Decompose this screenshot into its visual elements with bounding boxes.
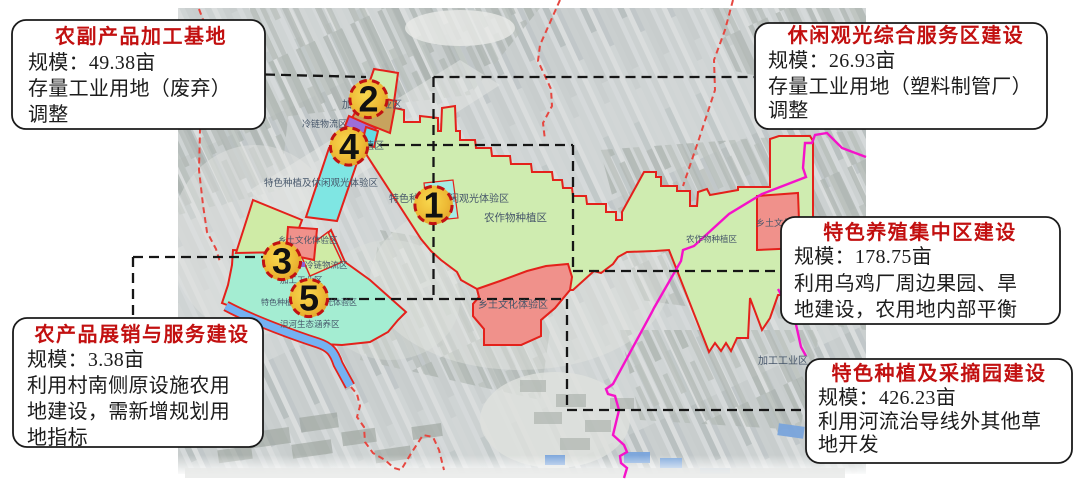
svg-text:调整: 调整 [28,103,69,126]
svg-text:地指标: 地指标 [27,426,88,449]
svg-text:冷链物流区: 冷链物流区 [305,260,348,270]
svg-text:利用河流治导线外其他草: 利用河流治导线外其他草 [818,410,1041,433]
svg-text:5: 5 [299,278,319,319]
svg-text:规模：26.93亩: 规模：26.93亩 [768,49,896,72]
svg-text:农产品展销与服务建设: 农产品展销与服务建设 [34,322,250,346]
svg-text:利用村南侧原设施农用: 利用村南侧原设施农用 [27,374,230,397]
svg-text:存量工业用地（废弃）: 存量工业用地（废弃） [28,77,231,100]
svg-text:休闲观光综合服务区建设: 休闲观光综合服务区建设 [787,23,1025,47]
svg-text:4: 4 [339,126,359,167]
svg-text:特色种植及休闲观光体验区: 特色种植及休闲观光体验区 [264,177,379,189]
svg-text:农作物种植区: 农作物种植区 [484,211,547,224]
svg-text:农副产品加工基地: 农副产品加工基地 [54,24,227,48]
svg-text:泹河生态涵养区: 泹河生态涵养区 [280,319,340,329]
svg-text:特色养殖集中区建设: 特色养殖集中区建设 [823,220,1017,244]
svg-text:规模：3.38亩: 规模：3.38亩 [27,348,144,371]
svg-text:地建设，农用地内部平衡: 地建设，农用地内部平衡 [794,298,1017,321]
svg-text:规模：426.23亩: 规模：426.23亩 [818,386,956,409]
svg-text:存量工业用地（塑料制管厂）: 存量工业用地（塑料制管厂） [768,75,1032,98]
svg-text:1: 1 [423,185,443,226]
svg-text:规模：49.38亩: 规模：49.38亩 [28,51,156,74]
svg-text:特色种植及采摘园建设: 特色种植及采摘园建设 [832,361,1047,385]
svg-text:农作物种植区: 农作物种植区 [686,234,738,244]
svg-text:加工工业区: 加工工业区 [758,355,808,367]
svg-text:地开发: 地开发 [818,433,879,456]
svg-text:乡土文化体验区: 乡土文化体验区 [478,298,548,311]
svg-text:调整: 调整 [768,99,809,122]
svg-text:地建设，需新增规划用: 地建设，需新增规划用 [27,400,230,423]
svg-text:规模：178.75亩: 规模：178.75亩 [794,245,932,268]
svg-text:利用乌鸡厂周边果园、旱: 利用乌鸡厂周边果园、旱 [794,272,1017,295]
svg-text:3: 3 [272,241,292,282]
svg-text:2: 2 [358,79,378,120]
